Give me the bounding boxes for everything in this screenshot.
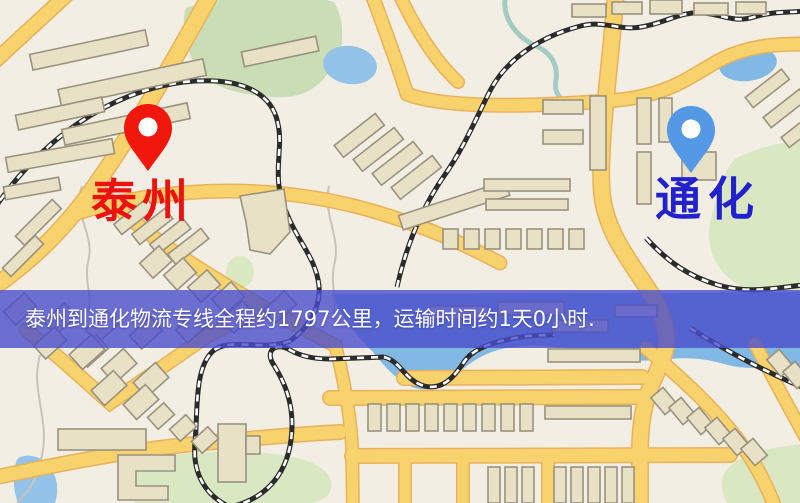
- route-info-banner: 泰州到通化物流专线全程约1797公里，运输时间约1天0小时.: [0, 290, 800, 348]
- destination-marker-icon: [666, 103, 716, 175]
- route-map-image: 泰州 通化 泰州到通化物流专线全程约1797公里，运输时间约1天0小时.: [0, 0, 800, 503]
- origin-marker-icon: [123, 102, 173, 172]
- origin-city-label: 泰州: [91, 178, 193, 224]
- route-info-text: 泰州到通化物流专线全程约1797公里，运输时间约1天0小时.: [0, 290, 800, 348]
- map-canvas: [0, 0, 800, 503]
- destination-city-label: 通化: [655, 176, 761, 222]
